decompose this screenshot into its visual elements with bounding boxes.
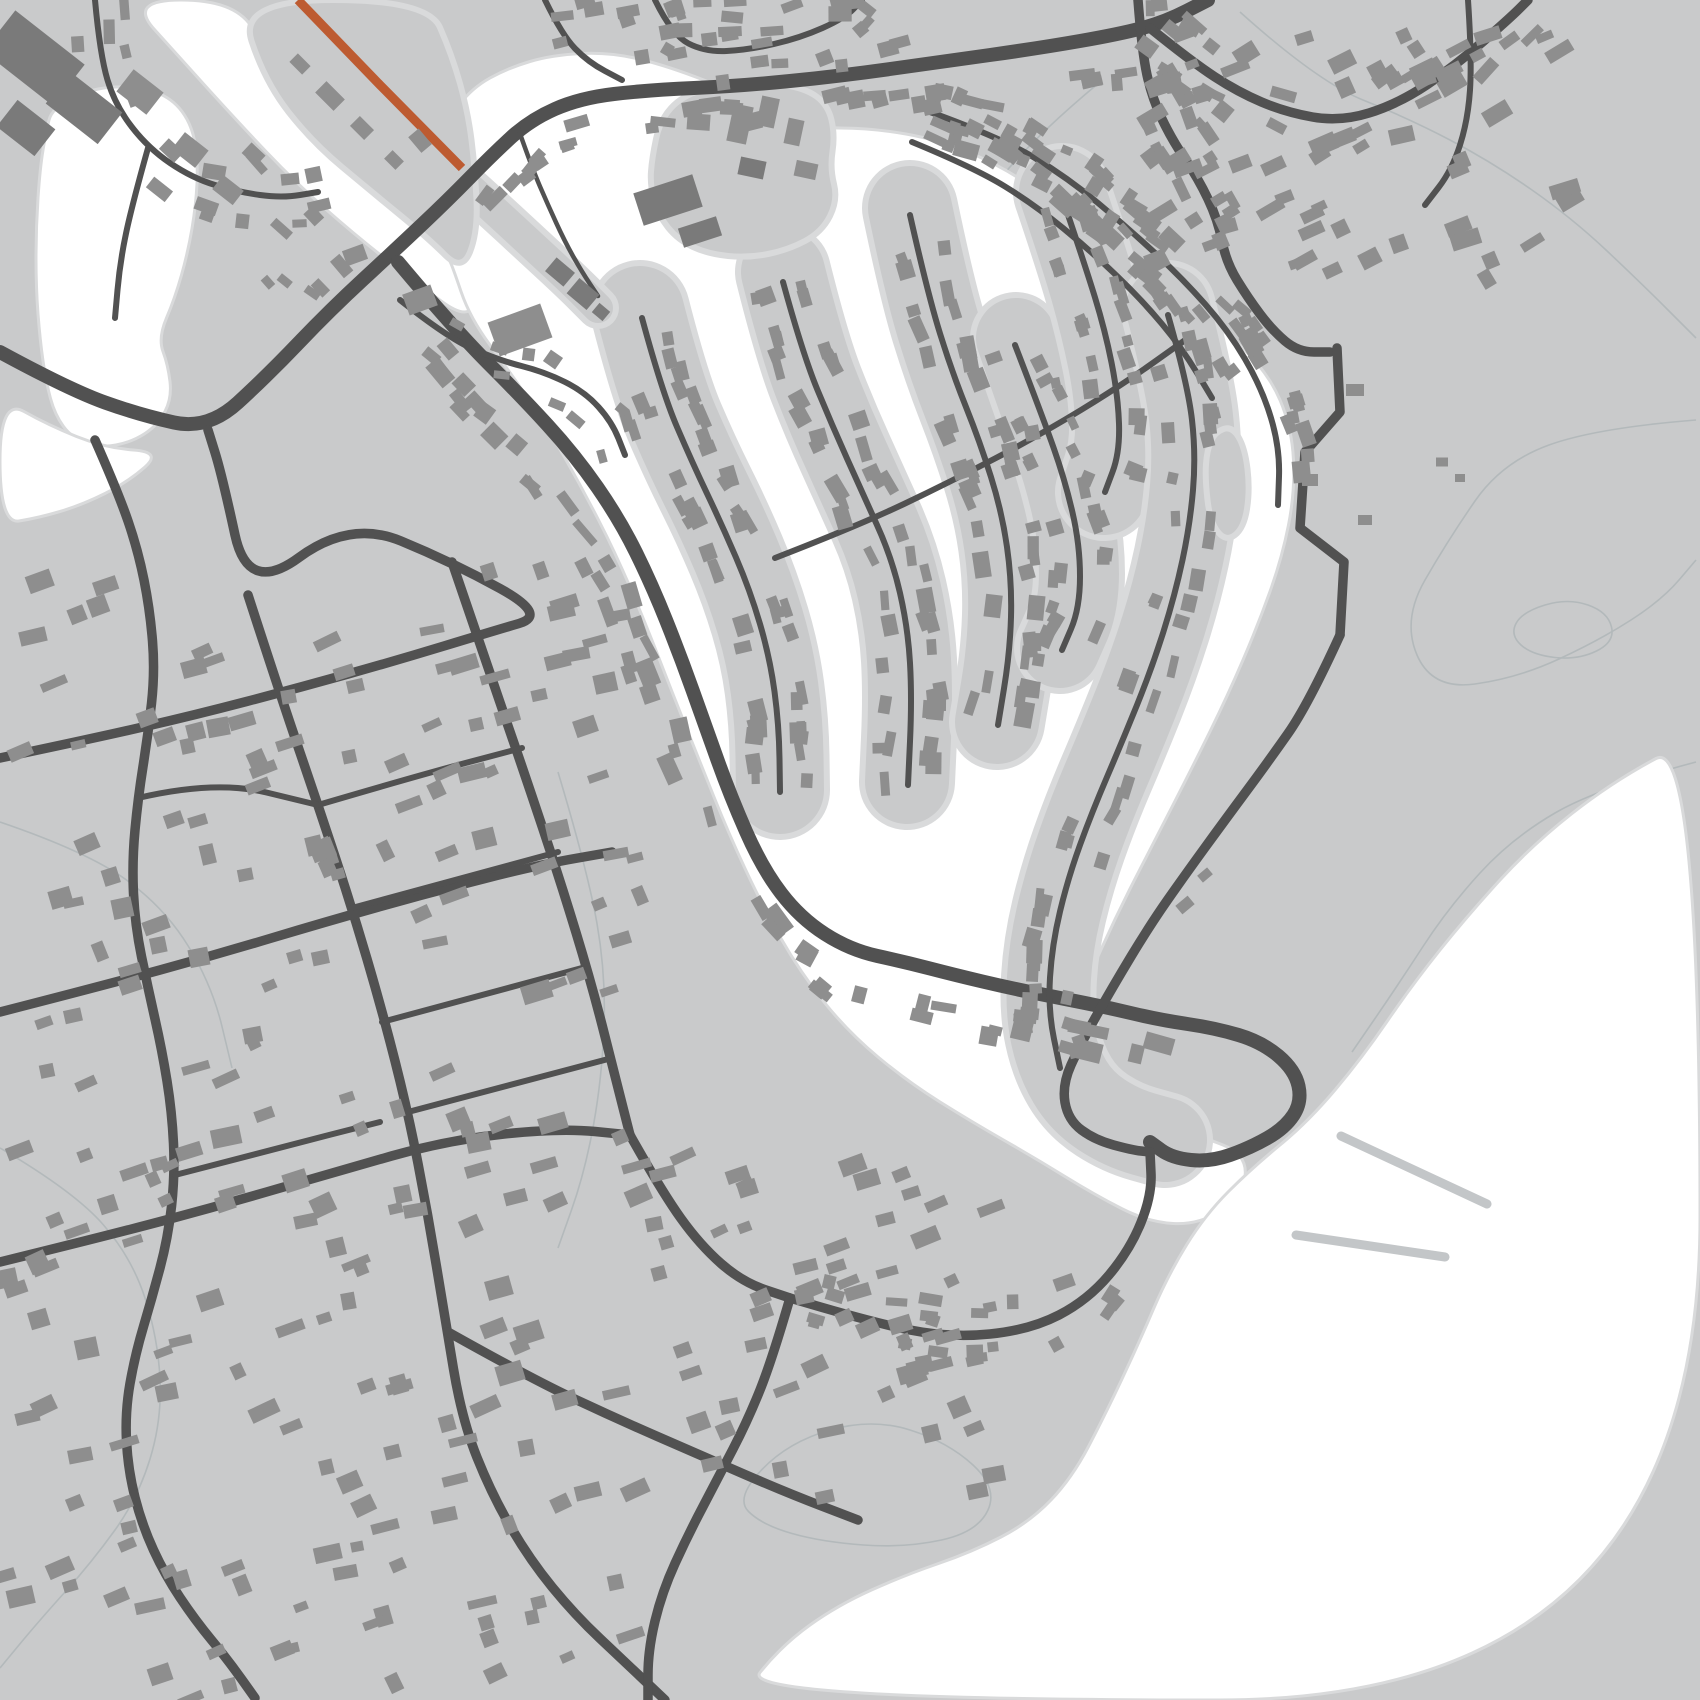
building [645, 122, 659, 134]
building [924, 83, 946, 103]
building [235, 213, 250, 229]
building [721, 10, 744, 23]
building [937, 240, 951, 256]
building [517, 1439, 535, 1457]
building [292, 219, 307, 228]
building [1082, 379, 1100, 400]
building [1098, 547, 1113, 562]
building [522, 348, 536, 362]
building [760, 26, 783, 37]
building [1032, 653, 1045, 667]
building [1436, 458, 1448, 467]
building [920, 1310, 939, 1322]
building [493, 370, 510, 380]
building [745, 727, 765, 746]
building [1007, 1294, 1019, 1309]
map-svg [0, 0, 1700, 1700]
building [187, 947, 210, 969]
building [771, 58, 788, 68]
building [1171, 511, 1181, 527]
building [110, 896, 134, 920]
building [340, 1292, 357, 1311]
building [880, 771, 891, 796]
building [886, 1297, 908, 1307]
building [671, 23, 693, 38]
building [983, 594, 1002, 618]
building [720, 26, 739, 42]
building [699, 96, 723, 113]
building [835, 59, 849, 73]
building [1048, 570, 1059, 588]
building [1128, 408, 1144, 425]
building [1358, 515, 1372, 525]
building [1205, 511, 1216, 531]
building [1292, 460, 1312, 483]
building [119, 0, 130, 20]
building [1202, 403, 1218, 425]
building [1029, 983, 1042, 994]
building [716, 74, 731, 91]
building [1287, 410, 1300, 424]
building [634, 49, 650, 66]
building [775, 606, 786, 618]
building [1111, 73, 1123, 91]
building [1346, 384, 1364, 396]
building [71, 36, 84, 53]
building [1027, 595, 1046, 621]
building [662, 331, 675, 346]
building [280, 689, 297, 705]
building [750, 55, 769, 69]
building [1020, 1007, 1040, 1020]
building [745, 753, 762, 775]
building [1161, 422, 1175, 444]
building [791, 692, 803, 710]
building [304, 166, 322, 184]
building [973, 1352, 987, 1363]
building [1204, 422, 1217, 435]
building [280, 172, 299, 185]
building [103, 19, 115, 44]
building [961, 351, 979, 373]
building [872, 743, 889, 754]
building [693, 0, 712, 7]
building [701, 32, 718, 47]
building [393, 1184, 412, 1204]
building [880, 590, 890, 610]
building [875, 657, 889, 674]
building [801, 773, 813, 788]
building [149, 936, 168, 955]
building [39, 1063, 56, 1079]
map-canvas [0, 0, 1700, 1700]
building [1028, 536, 1039, 559]
building [341, 749, 357, 765]
building [1025, 680, 1040, 698]
building [846, 89, 866, 109]
building [987, 1341, 999, 1352]
building [1455, 474, 1465, 482]
building [926, 639, 937, 655]
building [772, 1460, 789, 1478]
building [1028, 952, 1041, 971]
building [792, 730, 809, 745]
building [720, 101, 743, 114]
building [607, 1574, 625, 1592]
building [1151, 0, 1168, 12]
